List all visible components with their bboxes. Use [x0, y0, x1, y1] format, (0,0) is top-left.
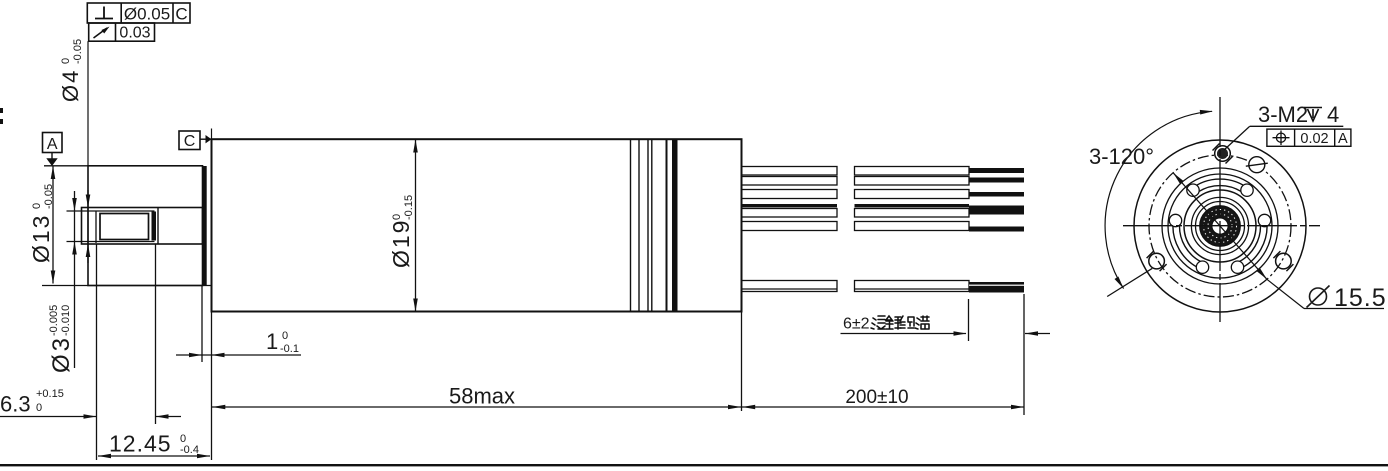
svg-text:Ø3: Ø3	[48, 335, 75, 373]
svg-text:0: 0	[391, 214, 403, 220]
svg-text:-0.05: -0.05	[43, 184, 55, 209]
svg-text:Ø4: Ø4	[58, 69, 83, 102]
svg-text:-0.005: -0.005	[48, 305, 60, 336]
svg-text:-0.05: -0.05	[72, 39, 84, 64]
svg-text:0: 0	[36, 402, 42, 414]
svg-text:Ø0.05: Ø0.05	[124, 5, 170, 24]
svg-text:3-120°: 3-120°	[1089, 144, 1154, 169]
svg-text:1: 1	[266, 329, 278, 354]
svg-text:A: A	[47, 136, 58, 153]
svg-text:-0.1: -0.1	[280, 343, 299, 355]
svg-text:12.45: 12.45	[109, 431, 172, 457]
svg-text:-0.010: -0.010	[60, 305, 72, 336]
svg-text:+0.15: +0.15	[36, 388, 64, 400]
svg-text:C: C	[175, 5, 187, 24]
svg-text:Ø19: Ø19	[388, 219, 414, 268]
svg-text:0.03: 0.03	[119, 25, 150, 42]
svg-text:-0.15: -0.15	[403, 195, 415, 220]
svg-text:15.5: 15.5	[1334, 284, 1387, 312]
svg-text:200±10: 200±10	[845, 387, 908, 408]
svg-text:-0.4: -0.4	[180, 444, 199, 456]
svg-text:0.02: 0.02	[1300, 131, 1328, 147]
svg-text:0: 0	[60, 58, 72, 64]
svg-text:C: C	[184, 133, 196, 150]
svg-text:58max: 58max	[449, 384, 515, 409]
svg-text:Ø13: Ø13	[28, 214, 54, 263]
svg-text:6.3: 6.3	[0, 392, 31, 417]
svg-text:0: 0	[282, 330, 288, 342]
svg-text:6±2: 6±2	[843, 316, 870, 333]
svg-text:A: A	[1338, 131, 1348, 147]
svg-text:4: 4	[1327, 102, 1339, 127]
svg-text:0: 0	[31, 203, 43, 209]
svg-text:3-M2: 3-M2	[1258, 102, 1308, 127]
